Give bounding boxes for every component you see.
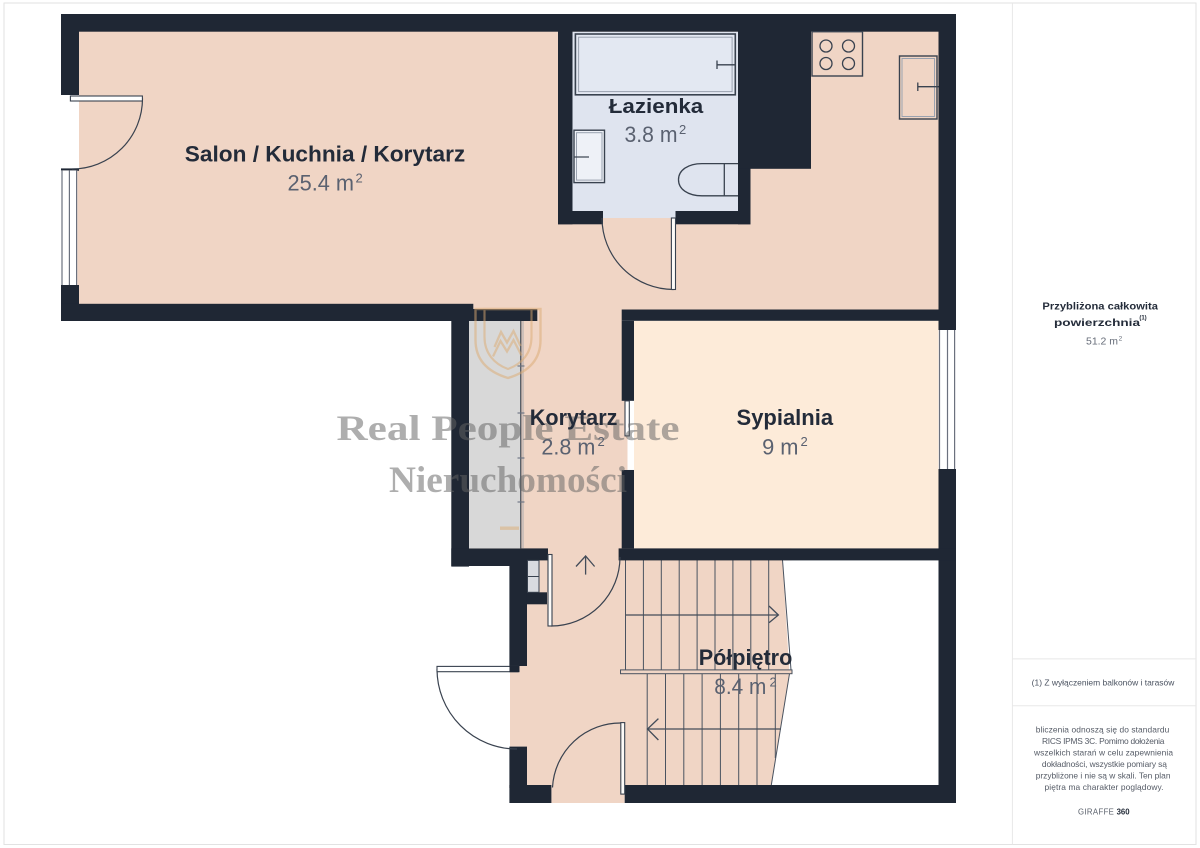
svg-text:RICS IPMS 3C. Pomimo dołożenia: RICS IPMS 3C. Pomimo dołożenia: [1042, 736, 1165, 746]
svg-text:powierzchnia: powierzchnia: [1054, 318, 1140, 329]
svg-text:przybliżone i nie są w skali.: przybliżone i nie są w skali. Ten plan: [1036, 771, 1171, 781]
svg-text:Przybliżona całkowita: Przybliżona całkowita: [1042, 302, 1158, 313]
svg-text:Salon / Kuchnia / Korytarz: Salon / Kuchnia / Korytarz: [185, 142, 465, 167]
svg-text:dokładności, wszystkie pomiary: dokładności, wszystkie pomiary są: [1042, 759, 1167, 769]
svg-text:2.8 m: 2.8 m: [541, 434, 595, 459]
svg-text:Półpiętro: Półpiętro: [699, 645, 793, 670]
svg-text:25.4 m: 25.4 m: [288, 171, 355, 196]
svg-text:3.8 m: 3.8 m: [625, 122, 678, 147]
svg-text:(1) Z wyłączeniem balkonów i t: (1) Z wyłączeniem balkonów i tarasów: [1032, 678, 1175, 687]
svg-text:360: 360: [1117, 808, 1131, 817]
svg-text:(1): (1): [1139, 316, 1146, 322]
svg-text:wszelkich starań w celu zapewn: wszelkich starań w celu zapewnienia: [1033, 748, 1173, 758]
svg-text:51.2 m: 51.2 m: [1086, 336, 1118, 347]
svg-text:Korytarz: Korytarz: [530, 405, 618, 430]
svg-text:2: 2: [770, 675, 777, 690]
svg-text:9 m: 9 m: [762, 434, 798, 459]
svg-text:Nieruchomości: Nieruchomości: [389, 460, 627, 501]
svg-text:2: 2: [356, 171, 363, 186]
svg-text:Real People Estate: Real People Estate: [337, 408, 680, 448]
svg-text:GIRAFFE: GIRAFFE: [1078, 808, 1114, 817]
svg-text:2: 2: [679, 122, 686, 137]
svg-text:piętra ma charakter poglądowy.: piętra ma charakter poglądowy.: [1045, 782, 1164, 792]
svg-text:bliczenia odnoszą się do stand: bliczenia odnoszą się do standardu: [1036, 725, 1170, 735]
svg-text:8.4 m: 8.4 m: [714, 674, 766, 699]
svg-text:2: 2: [801, 434, 808, 449]
svg-text:Sypialnia: Sypialnia: [737, 405, 834, 430]
svg-text:Łazienka: Łazienka: [609, 96, 704, 118]
svg-text:2: 2: [598, 434, 605, 449]
svg-text:2: 2: [1119, 336, 1123, 343]
